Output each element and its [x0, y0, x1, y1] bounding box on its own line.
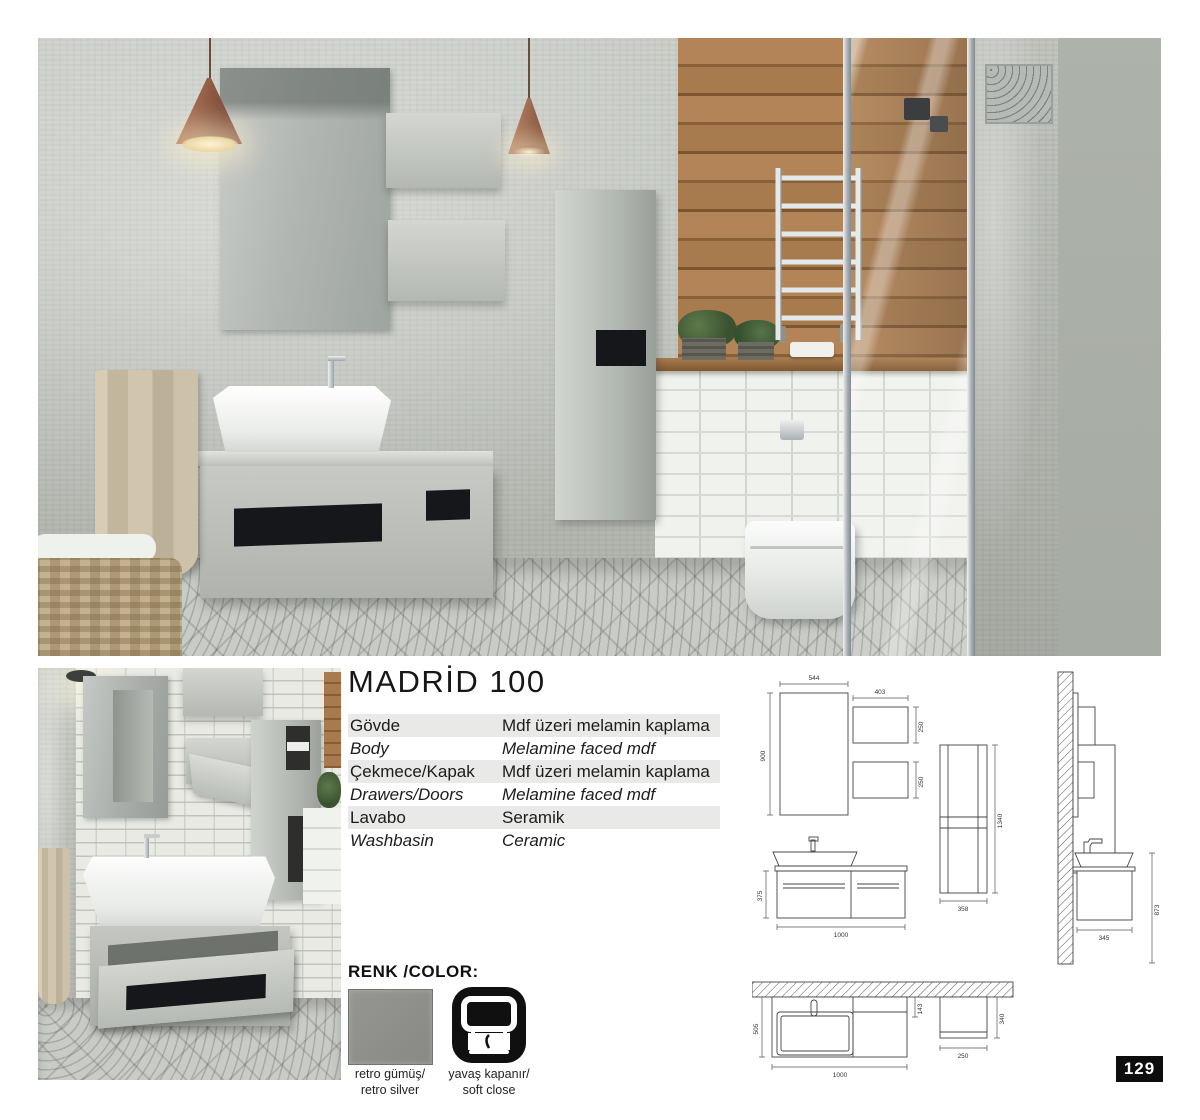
page-number: 129: [1116, 1056, 1163, 1082]
spec-row: Lavabo Seramik: [348, 806, 720, 829]
spec-value: Melamine faced mdf: [502, 739, 720, 759]
svg-text:1000: 1000: [833, 1072, 848, 1079]
spec-row: Drawers/Doors Melamine faced mdf: [348, 783, 720, 806]
spec-value: Melamine faced mdf: [502, 785, 720, 805]
shower-glass: [850, 38, 968, 656]
spec-row: Body Melamine faced mdf: [348, 737, 720, 760]
mirror: [220, 68, 390, 330]
shower-interior-wall: [975, 38, 1058, 656]
faucet-spout: [144, 834, 160, 838]
color-section-heading: RENK /COLOR:: [348, 962, 479, 982]
lamp-glow: [512, 146, 546, 158]
technical-drawings: 544 900 403 250 250 1340 358: [752, 670, 1188, 1082]
mirror-reflection: [113, 690, 153, 802]
svg-text:505: 505: [753, 1023, 760, 1034]
bathroom-photo-detail: [38, 668, 341, 1080]
shower-hinge: [930, 116, 948, 132]
toilet-paper-holder: [780, 420, 804, 440]
bathroom-photo-main: [38, 38, 1058, 656]
swatch-caption-line1: retro gümüş/: [334, 1066, 446, 1082]
drawing-side-view: 345 873: [1058, 672, 1161, 964]
wall-cabinet-top: [386, 113, 501, 188]
svg-text:358: 358: [958, 906, 969, 913]
spec-value: Ceramic: [502, 831, 720, 851]
svg-text:250: 250: [918, 776, 925, 787]
side-color-band: [1058, 38, 1161, 656]
color-swatch-retro-silver: [348, 989, 433, 1065]
pendant-lamp-cord: [209, 38, 211, 80]
spec-label: Washbasin: [348, 831, 502, 851]
shower-frame-left: [843, 38, 851, 656]
swatch-caption: retro gümüş/ retro silver: [334, 1066, 446, 1099]
soft-close-icon: [451, 986, 527, 1064]
drawing-plan-view: 505 143 1000 250 340: [752, 982, 1013, 1079]
spec-label: Drawers/Doors: [348, 785, 502, 805]
plant-basket: [682, 338, 726, 360]
feature-caption-line2: soft close: [433, 1082, 545, 1098]
drawing-vanity-front: 375 1000: [757, 837, 907, 939]
svg-text:403: 403: [875, 689, 886, 696]
drawing-tall-cabinet-front: 1340 358: [940, 745, 1004, 913]
plant-basket: [738, 342, 774, 360]
svg-text:375: 375: [757, 890, 764, 901]
spec-label: Lavabo: [348, 808, 502, 828]
drawing-wall-cabinets-front: 403 250 250: [853, 689, 925, 798]
spec-value: Mdf üzeri melamin kaplama: [502, 762, 720, 782]
toilet: [745, 521, 855, 619]
rain-shower-head: [985, 64, 1053, 124]
shower-hinge: [904, 98, 930, 120]
toilet-seat-line: [750, 546, 850, 549]
vanity-drawer-slot: [234, 503, 382, 546]
hanging-towel: [38, 848, 70, 1004]
low-tile-wall: [303, 808, 341, 904]
spec-row: Gövde Mdf üzeri melamin kaplama: [348, 714, 720, 737]
wall-cabinet: [183, 668, 263, 716]
product-title: MADRİD 100: [348, 664, 546, 700]
svg-text:345: 345: [1099, 935, 1110, 942]
svg-text:1340: 1340: [997, 813, 1004, 828]
spec-value: Seramik: [502, 808, 720, 828]
wicker-basket: [38, 558, 182, 656]
washbasin: [83, 850, 275, 932]
svg-text:544: 544: [809, 675, 820, 682]
spec-label: Çekmece/Kapak: [348, 762, 502, 782]
pendant-lamp-cord: [528, 38, 530, 100]
washbasin: [213, 386, 391, 452]
spec-row: Washbasin Ceramic: [348, 829, 720, 852]
plant: [317, 772, 341, 808]
spec-table: Gövde Mdf üzeri melamin kaplama Body Mel…: [348, 714, 720, 852]
towel-stack: [790, 342, 834, 357]
spec-label: Gövde: [348, 716, 502, 736]
niche-towel: [287, 742, 309, 751]
shower-frame-right: [967, 38, 975, 656]
drawing-mirror-front: 544 900: [760, 675, 848, 815]
swatch-caption-line2: retro silver: [334, 1082, 446, 1098]
svg-text:873: 873: [1154, 904, 1161, 915]
svg-text:340: 340: [999, 1013, 1006, 1024]
svg-text:250: 250: [958, 1053, 969, 1060]
tall-cabinet-handle-slot: [596, 330, 646, 366]
svg-text:250: 250: [918, 721, 925, 732]
vanity-door-slot: [426, 489, 470, 521]
spec-row: Çekmece/Kapak Mdf üzeri melamin kaplama: [348, 760, 720, 783]
spec-value: Mdf üzeri melamin kaplama: [502, 716, 720, 736]
wood-strip: [324, 672, 341, 768]
faucet-spout: [328, 356, 346, 361]
lamp-glow: [182, 136, 238, 152]
faucet: [144, 836, 149, 858]
svg-text:900: 900: [760, 750, 767, 761]
svg-text:143: 143: [917, 1003, 924, 1014]
feature-caption: yavaş kapanır/ soft close: [433, 1066, 545, 1099]
spec-label: Body: [348, 739, 502, 759]
svg-text:1000: 1000: [834, 932, 849, 939]
feature-caption-line1: yavaş kapanır/: [433, 1066, 545, 1082]
faucet: [328, 358, 334, 388]
wall-cabinet-bottom: [388, 220, 505, 301]
catalog-page: MADRİD 100 Gövde Mdf üzeri melamin kapla…: [0, 0, 1200, 1120]
